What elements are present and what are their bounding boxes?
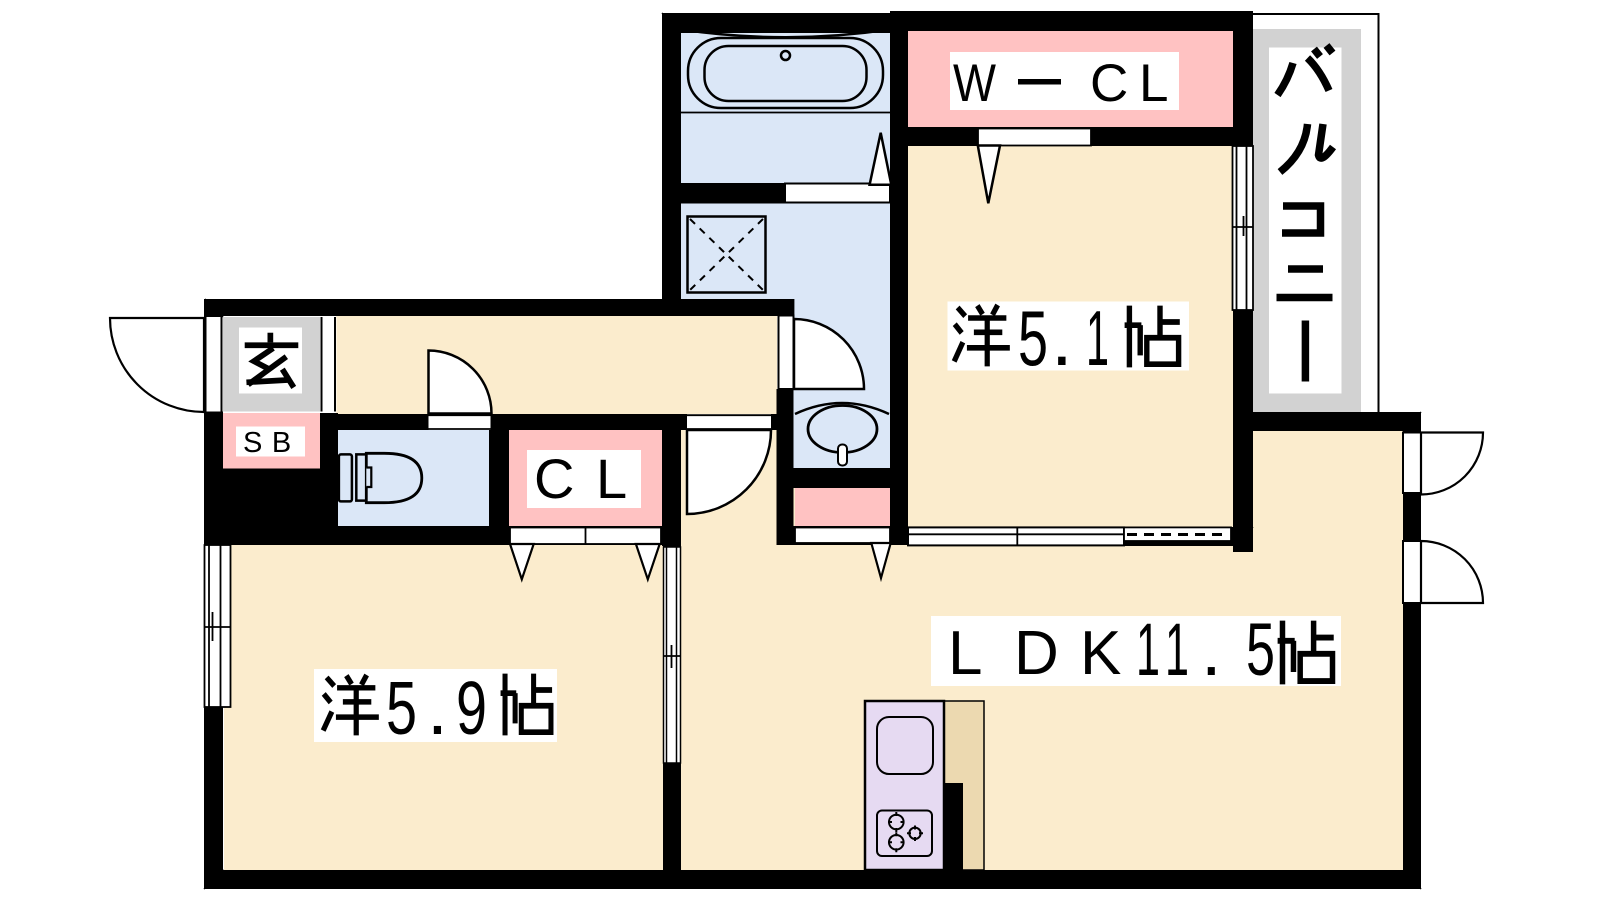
svg-text:.: .	[427, 666, 448, 750]
svg-text:5: 5	[1246, 608, 1275, 691]
svg-text:C: C	[534, 447, 574, 510]
svg-text:L: L	[596, 447, 627, 510]
svg-text:9: 9	[456, 666, 487, 750]
svg-text:1: 1	[1086, 294, 1109, 382]
svg-text:1: 1	[1136, 608, 1160, 691]
svg-text:K: K	[1080, 619, 1121, 688]
svg-text:L: L	[948, 619, 982, 688]
svg-text:.: .	[1201, 608, 1222, 691]
svg-text:5: 5	[386, 666, 417, 750]
svg-text:D: D	[1014, 619, 1059, 688]
svg-text:1: 1	[1165, 608, 1189, 691]
svg-text:SB: SB	[243, 427, 301, 459]
svg-text:5: 5	[1018, 294, 1048, 382]
svg-text:C: C	[1090, 54, 1128, 113]
svg-text:W: W	[953, 54, 996, 113]
svg-text:L: L	[1139, 54, 1168, 113]
svg-text:.: .	[1051, 294, 1073, 382]
